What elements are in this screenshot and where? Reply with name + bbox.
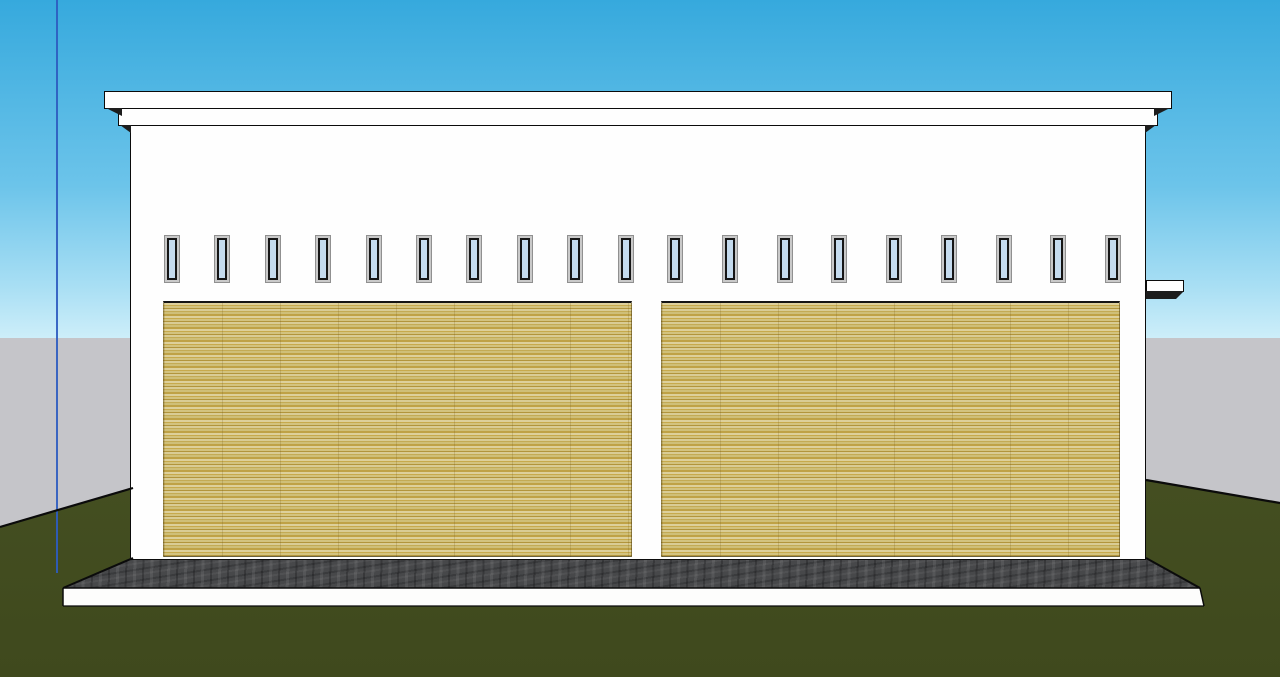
clerestory-window[interactable]	[164, 235, 180, 283]
clerestory-window[interactable]	[831, 235, 847, 283]
window-glass	[1108, 238, 1118, 280]
clerestory-window[interactable]	[265, 235, 281, 283]
clerestory-window[interactable]	[667, 235, 683, 283]
clerestory-window[interactable]	[618, 235, 634, 283]
side-wall-ledge[interactable]	[1146, 280, 1184, 292]
parapet-cap[interactable]	[104, 91, 1172, 109]
clerestory-window[interactable]	[722, 235, 738, 283]
clerestory-window[interactable]	[1050, 235, 1066, 283]
roller-door-right[interactable]	[661, 301, 1120, 557]
clerestory-window[interactable]	[466, 235, 482, 283]
blue-axis-line	[56, 0, 58, 573]
parapet-band[interactable]	[118, 108, 1158, 126]
window-glass	[419, 238, 429, 280]
window-glass	[999, 238, 1009, 280]
window-glass	[268, 238, 278, 280]
window-glass	[780, 238, 790, 280]
window-glass	[217, 238, 227, 280]
window-glass	[725, 238, 735, 280]
clerestory-window[interactable]	[941, 235, 957, 283]
window-glass	[318, 238, 328, 280]
model-viewport[interactable]	[0, 0, 1280, 677]
window-glass	[944, 238, 954, 280]
clerestory-window[interactable]	[214, 235, 230, 283]
clerestory-window[interactable]	[996, 235, 1012, 283]
window-glass	[469, 238, 479, 280]
clerestory-window[interactable]	[366, 235, 382, 283]
window-glass	[1053, 238, 1063, 280]
clerestory-window[interactable]	[416, 235, 432, 283]
window-glass	[621, 238, 631, 280]
window-glass	[670, 238, 680, 280]
window-glass	[889, 238, 899, 280]
window-glass	[167, 238, 177, 280]
clerestory-window[interactable]	[1105, 235, 1121, 283]
window-glass	[520, 238, 530, 280]
window-glass	[369, 238, 379, 280]
clerestory-window[interactable]	[315, 235, 331, 283]
window-glass	[834, 238, 844, 280]
window-glass	[570, 238, 580, 280]
clerestory-window[interactable]	[517, 235, 533, 283]
clerestory-window[interactable]	[567, 235, 583, 283]
clerestory-window[interactable]	[777, 235, 793, 283]
roller-door-left[interactable]	[163, 301, 632, 557]
clerestory-window[interactable]	[886, 235, 902, 283]
